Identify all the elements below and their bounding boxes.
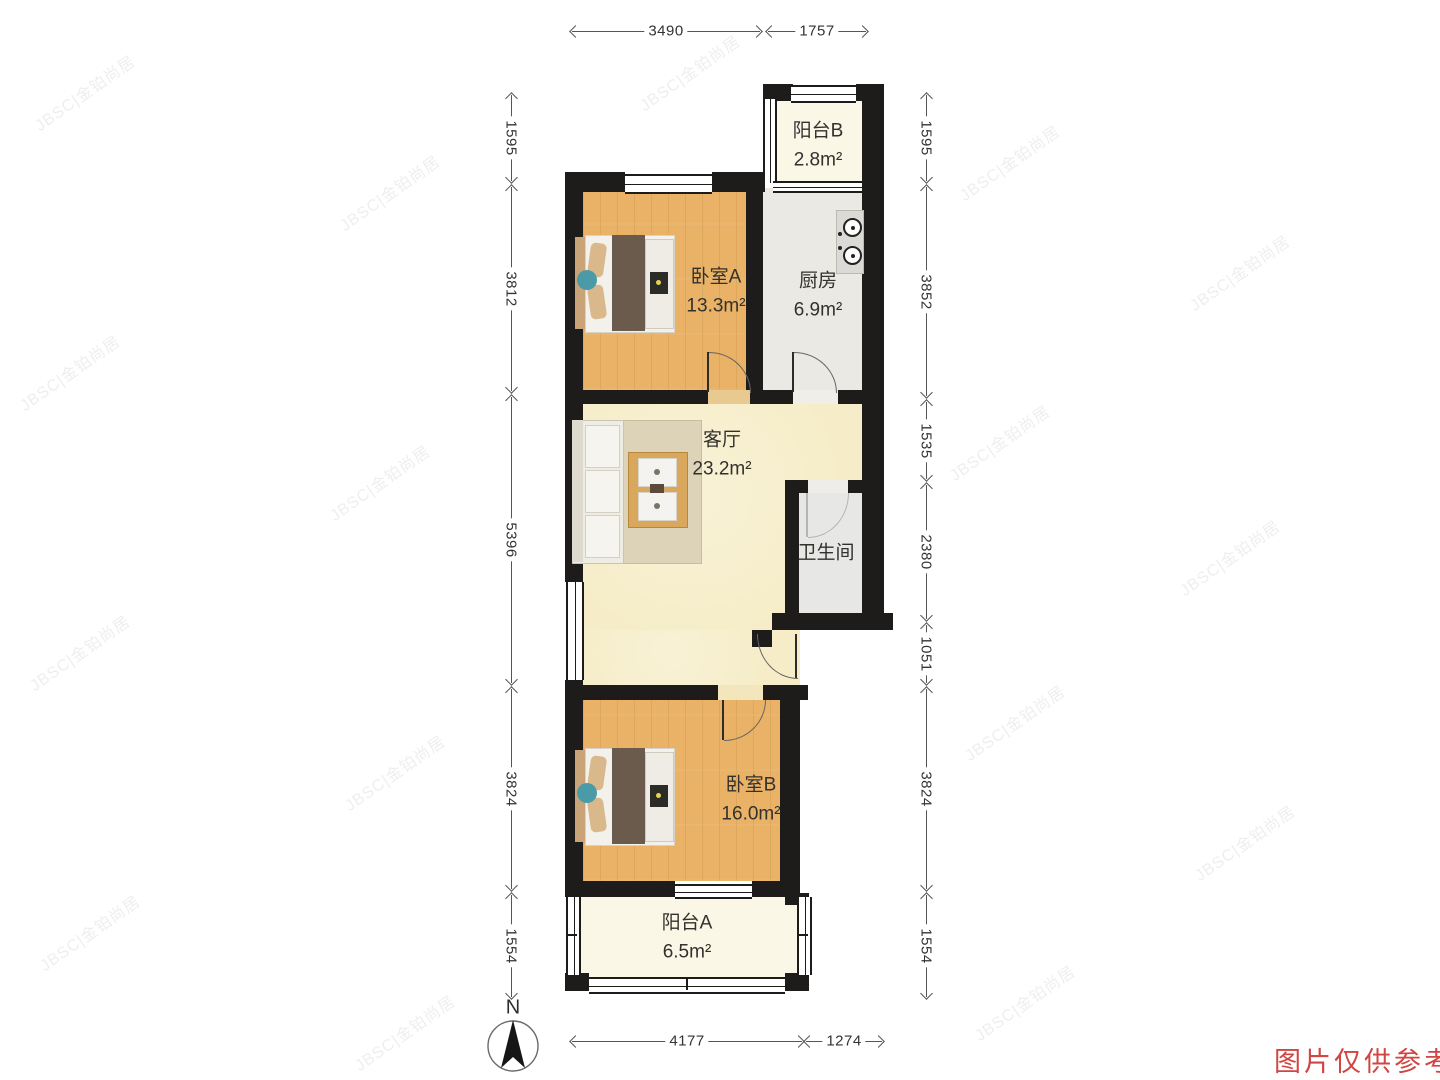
floor-plan: JBSC|金铂尚居 JBSC|金铂尚居 JBSC|金铂尚居 JBSC|金铂尚居 … — [0, 0, 1440, 1080]
duvet — [612, 235, 645, 331]
window-mullion — [797, 934, 808, 936]
room-label: 阳台B 2.8m² — [793, 117, 844, 176]
cushion — [577, 270, 597, 290]
dimension-label: 3490 — [644, 23, 687, 40]
dimension-label: 3824 — [918, 767, 935, 810]
table-decor — [650, 484, 664, 493]
room-label: 阳台A 6.5m² — [662, 909, 713, 968]
sofa-back — [572, 420, 583, 562]
table-decor — [654, 503, 660, 509]
wall — [750, 390, 793, 404]
watermark-text: JBSC|金铂尚居 — [954, 118, 1064, 205]
dimension-label: 1595 — [918, 116, 935, 159]
watermark-text: JBSC|金铂尚居 — [944, 398, 1054, 485]
dimension-line: 3824 — [919, 689, 933, 889]
window — [675, 884, 752, 899]
wall — [785, 480, 808, 493]
wall — [848, 480, 864, 493]
watermark-text: JBSC|金铂尚居 — [334, 148, 444, 235]
cushion — [577, 783, 597, 803]
dimension-label: 4177 — [665, 1033, 708, 1050]
stove-knob — [838, 232, 842, 236]
window — [566, 897, 581, 975]
room-label: 客厅 23.2m² — [692, 426, 751, 485]
room-name: 卧室A — [686, 263, 745, 292]
room-label: 卫生间 — [797, 538, 854, 567]
dimension-line: 1535 — [919, 402, 933, 479]
watermark-text: JBSC|金铂尚居 — [1189, 798, 1299, 885]
room-area: 6.5m² — [662, 938, 713, 967]
dimension-label: 3812 — [503, 267, 520, 310]
room-area: 6.9m² — [794, 296, 843, 325]
wall — [746, 183, 763, 390]
wall — [772, 613, 893, 630]
room-area: 2.8m² — [793, 146, 844, 175]
dimension-line: 1595 — [504, 95, 518, 181]
window — [763, 99, 777, 183]
room-label: 厨房 6.9m² — [794, 267, 843, 326]
compass-icon — [483, 1016, 543, 1076]
watermark-text: JBSC|金铂尚居 — [324, 438, 434, 525]
sofa-cushion — [585, 425, 620, 468]
dimension-line: 3812 — [504, 187, 518, 391]
dimension-label: 1554 — [918, 924, 935, 967]
wall — [862, 84, 884, 630]
watermark-text: JBSC|金铂尚居 — [349, 988, 459, 1075]
wall — [565, 685, 718, 700]
stove-knob — [838, 246, 842, 250]
window — [797, 897, 812, 975]
room-area: 16.0m² — [721, 800, 780, 829]
wall — [763, 685, 808, 700]
room-label: 卧室B 16.0m² — [721, 771, 780, 830]
watermark-text: JBSC|金铂尚居 — [34, 888, 144, 975]
dimension-line: 1595 — [919, 95, 933, 181]
wall — [565, 881, 675, 897]
dimension-line: 4177 — [572, 1034, 802, 1048]
window-mullion — [566, 934, 577, 936]
window — [566, 582, 584, 680]
tv-light — [656, 280, 661, 285]
dimension-label: 3852 — [918, 270, 935, 313]
dimension-label: 1535 — [918, 419, 935, 462]
tv-light — [656, 793, 661, 798]
room-name: 阳台B — [793, 117, 844, 146]
room-label: 卧室A 13.3m² — [686, 263, 745, 322]
watermark-text: JBSC|金铂尚居 — [14, 328, 124, 415]
sofa-cushion — [585, 470, 620, 513]
table-decor — [654, 469, 660, 475]
dimension-line: 2380 — [919, 485, 933, 619]
dimension-line: 3490 — [572, 24, 760, 38]
wall — [565, 973, 589, 991]
dimension-label: 1595 — [503, 116, 520, 159]
dimension-label: 1274 — [822, 1033, 865, 1050]
room-name: 阳台A — [662, 909, 713, 938]
burner-icon — [843, 246, 862, 265]
room-name: 卧室B — [721, 771, 780, 800]
dimension-line: 1051 — [919, 625, 933, 683]
watermark-text: JBSC|金铂尚居 — [339, 728, 449, 815]
window — [625, 174, 712, 194]
room-name: 卫生间 — [797, 538, 854, 567]
dimension-label: 1757 — [795, 23, 838, 40]
watermark-text: JBSC|金铂尚居 — [969, 958, 1079, 1045]
watermark-text: JBSC|金铂尚居 — [24, 608, 134, 695]
dimension-label: 3824 — [503, 767, 520, 810]
wall — [785, 973, 809, 991]
dimension-label: 1051 — [918, 632, 935, 675]
watermark-text: JBSC|金铂尚居 — [1174, 513, 1284, 600]
room-name: 客厅 — [692, 426, 751, 455]
watermark-text: JBSC|金铂尚居 — [1184, 228, 1294, 315]
dimension-line: 3824 — [504, 689, 518, 889]
watermark-text: JBSC|金铂尚居 — [634, 28, 744, 115]
duvet — [612, 748, 645, 844]
burner-icon — [843, 218, 862, 237]
door-threshold — [718, 685, 763, 700]
wall — [565, 390, 708, 404]
dimension-line: 1554 — [504, 895, 518, 997]
room-name: 厨房 — [794, 267, 843, 296]
wall — [780, 700, 800, 881]
dimension-label: 1554 — [503, 924, 520, 967]
dimension-label: 2380 — [918, 530, 935, 573]
watermark-text: JBSC|金铂尚居 — [29, 48, 139, 135]
room-area: 23.2m² — [692, 455, 751, 484]
window — [791, 85, 856, 103]
sofa-cushion — [585, 515, 620, 558]
dimension-line: 3852 — [919, 187, 933, 396]
room-area: 13.3m² — [686, 292, 745, 321]
window-mullion — [686, 977, 688, 990]
dimension-line: 1554 — [919, 895, 933, 997]
dimension-line: 1757 — [768, 24, 866, 38]
dimension-line: 1274 — [806, 1034, 882, 1048]
wall — [838, 390, 864, 404]
watermark-text: JBSC|金铂尚居 — [959, 678, 1069, 765]
disclaimer-text: 图片仅供参考 — [1274, 1040, 1440, 1079]
dimension-label: 5396 — [503, 518, 520, 561]
dimension-line: 5396 — [504, 397, 518, 683]
window — [773, 181, 862, 193]
